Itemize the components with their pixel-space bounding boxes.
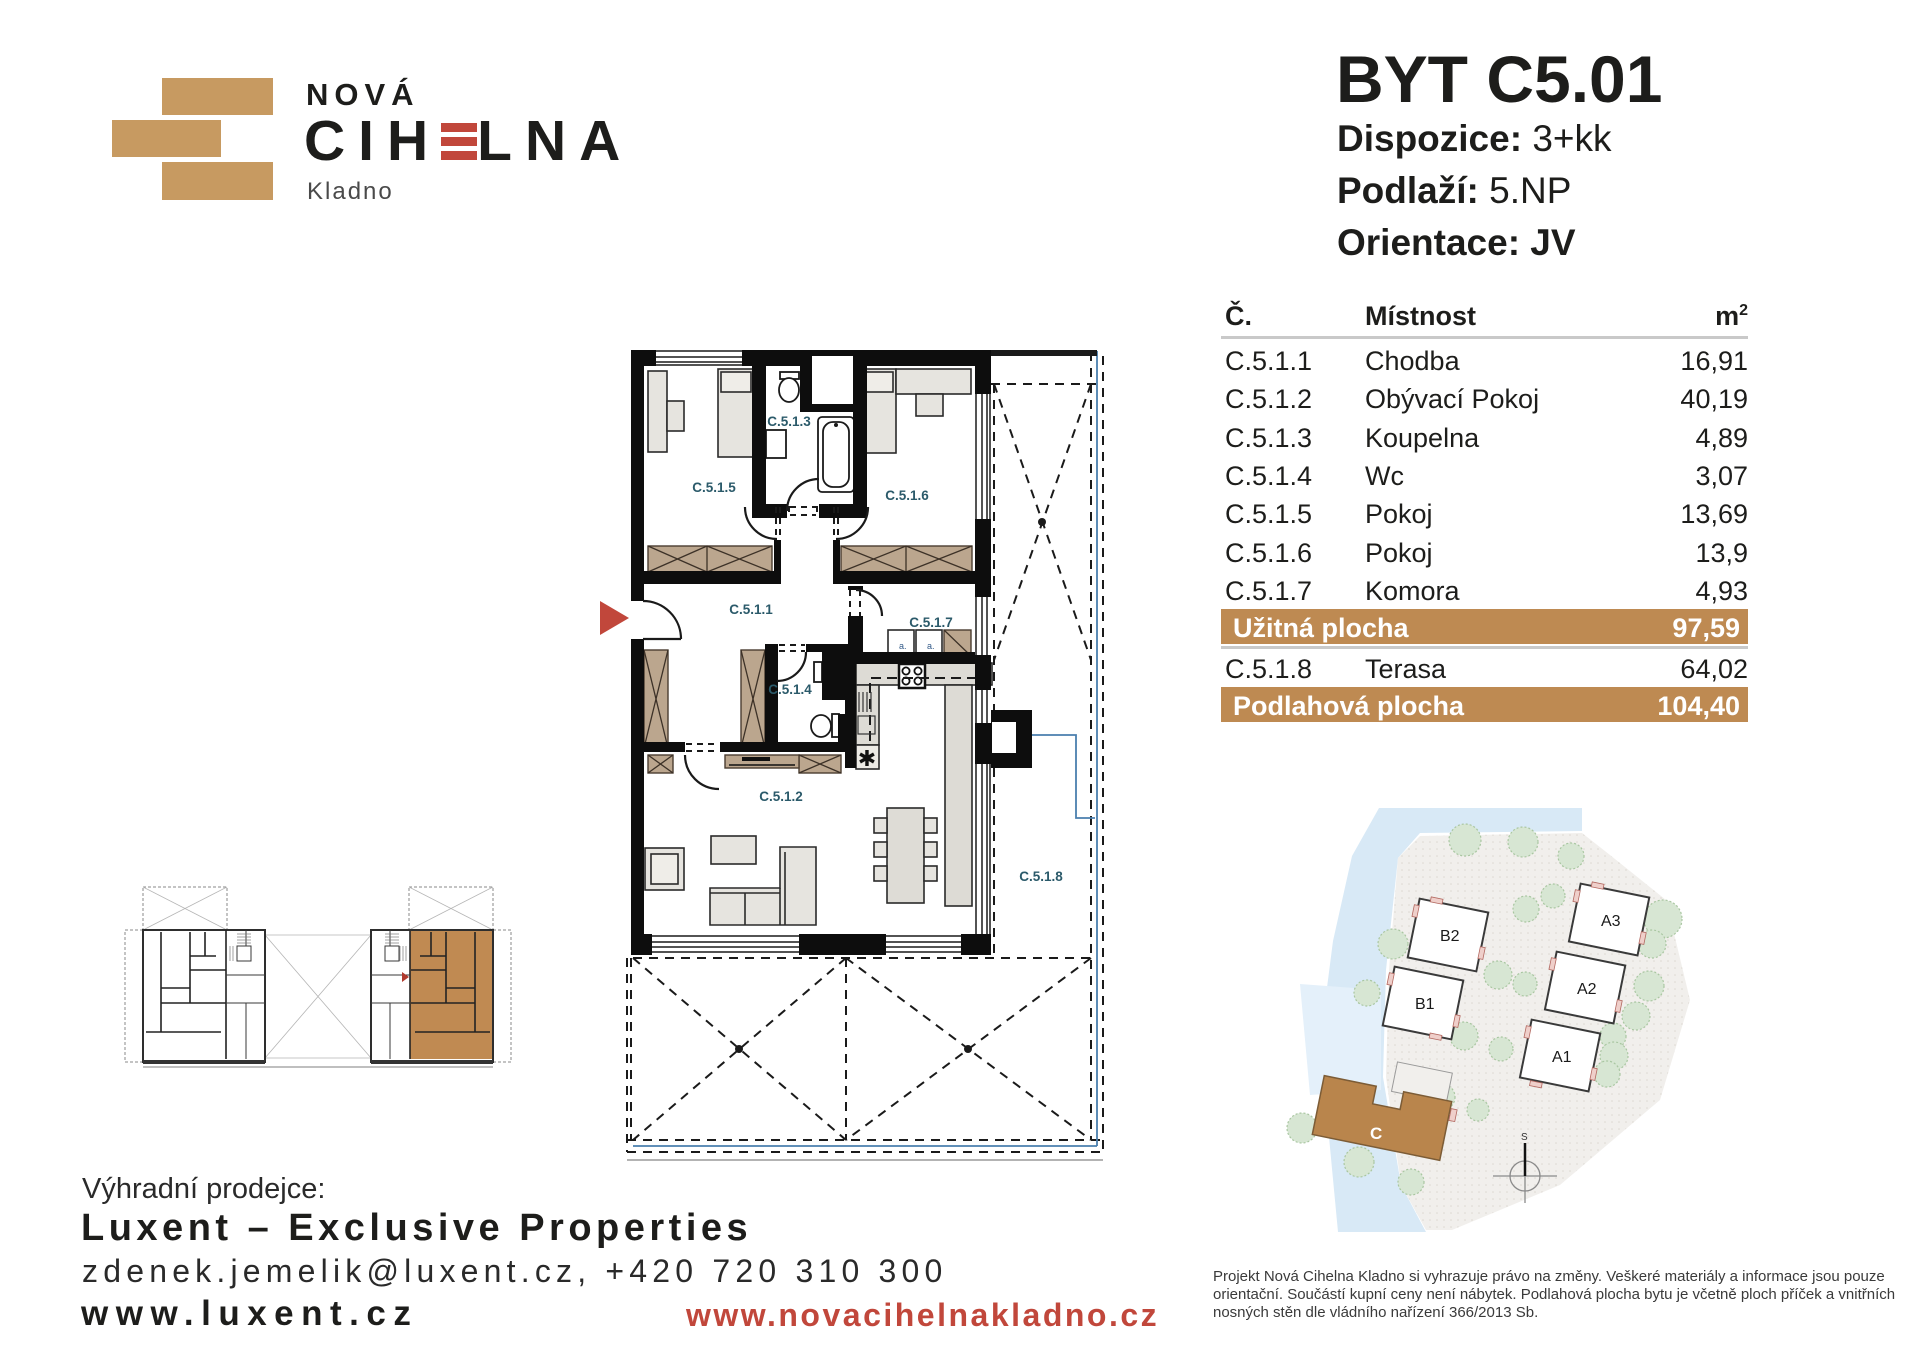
svg-text:A3: A3 (1601, 913, 1621, 930)
svg-text:C.5.1.4: C.5.1.4 (768, 682, 812, 697)
svg-text:C.5.1.3: C.5.1.3 (767, 414, 811, 429)
svg-text:✱: ✱ (858, 746, 876, 771)
svg-text:A1: A1 (1552, 1049, 1572, 1066)
svg-text:a.: a. (899, 641, 907, 651)
svg-text:B1: B1 (1415, 996, 1435, 1013)
svg-text:C: C (1370, 1124, 1382, 1143)
svg-text:C.5.1.8: C.5.1.8 (1019, 869, 1063, 884)
svg-text:C.5.1.2: C.5.1.2 (759, 789, 803, 804)
svg-text:B2: B2 (1440, 928, 1460, 945)
svg-text:A2: A2 (1577, 981, 1597, 998)
svg-text:S: S (1521, 1132, 1528, 1143)
svg-text:a.: a. (927, 641, 935, 651)
svg-text:C.5.1.5: C.5.1.5 (692, 480, 736, 495)
svg-text:C.5.1.7: C.5.1.7 (909, 615, 953, 630)
svg-text:C.5.1.6: C.5.1.6 (885, 488, 929, 503)
svg-text:C.5.1.1: C.5.1.1 (729, 602, 773, 617)
